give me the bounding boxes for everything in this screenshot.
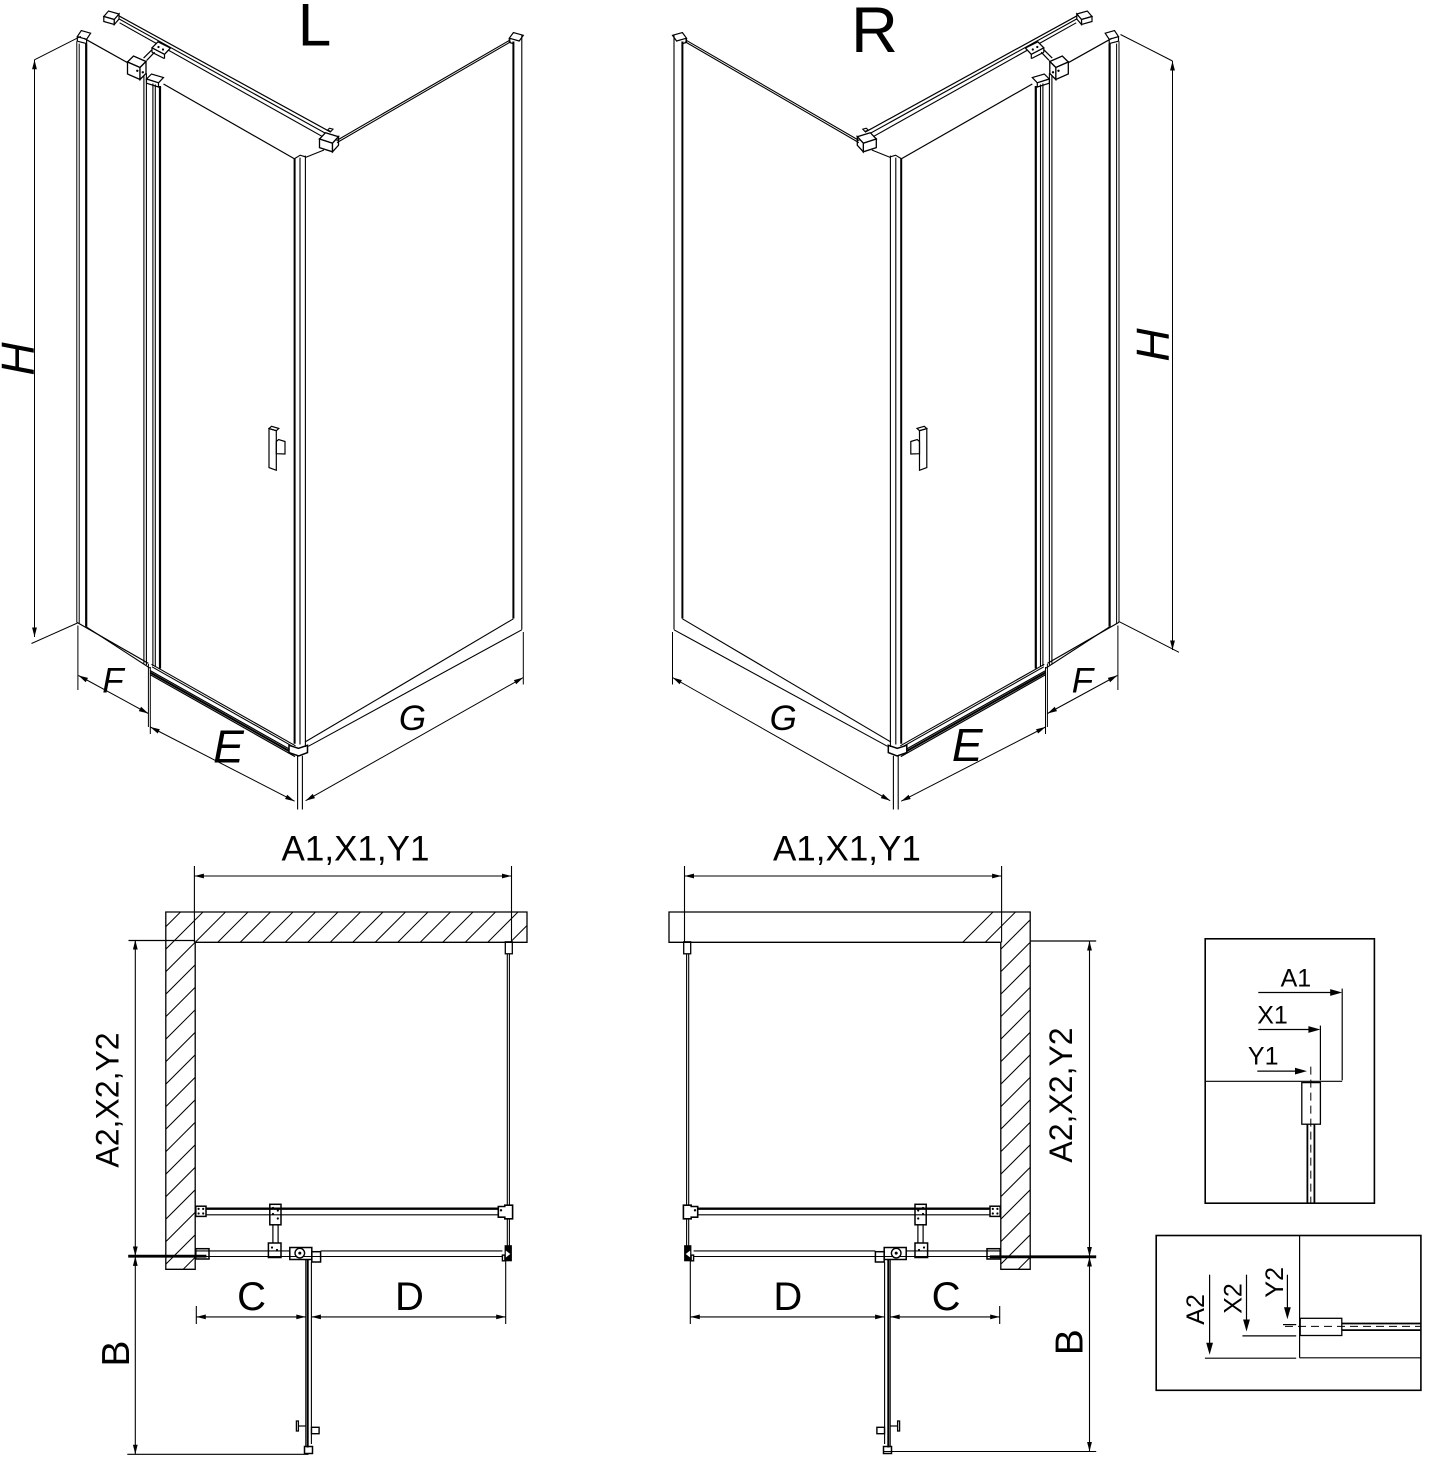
svg-text:Y1: Y1 [1248,1043,1279,1071]
svg-text:X2: X2 [1219,1283,1247,1314]
svg-text:A1,X1,Y1: A1,X1,Y1 [773,830,921,869]
svg-text:X1: X1 [1257,1002,1288,1030]
svg-text:A1: A1 [1281,965,1312,993]
svg-text:F: F [102,661,126,700]
svg-text:E: E [952,719,984,771]
svg-text:E: E [213,721,245,773]
svg-text:L: L [298,0,331,58]
svg-text:F: F [1072,661,1096,700]
svg-text:G: G [399,699,426,738]
svg-text:A2,X2,Y2: A2,X2,Y2 [1043,1027,1079,1162]
svg-text:A2: A2 [1182,1294,1210,1325]
svg-text:H: H [0,342,44,376]
svg-text:H: H [1127,328,1179,362]
svg-text:D: D [395,1275,424,1319]
svg-text:C: C [932,1275,961,1319]
svg-text:A1,X1,Y1: A1,X1,Y1 [282,830,430,869]
svg-text:G: G [770,699,797,738]
svg-text:C: C [237,1275,266,1319]
svg-text:R: R [851,0,898,66]
svg-text:Y2: Y2 [1261,1267,1289,1298]
svg-text:B: B [1048,1329,1091,1355]
svg-text:B: B [95,1341,138,1367]
svg-text:A2,X2,Y2: A2,X2,Y2 [90,1032,126,1167]
svg-text:D: D [773,1275,802,1319]
